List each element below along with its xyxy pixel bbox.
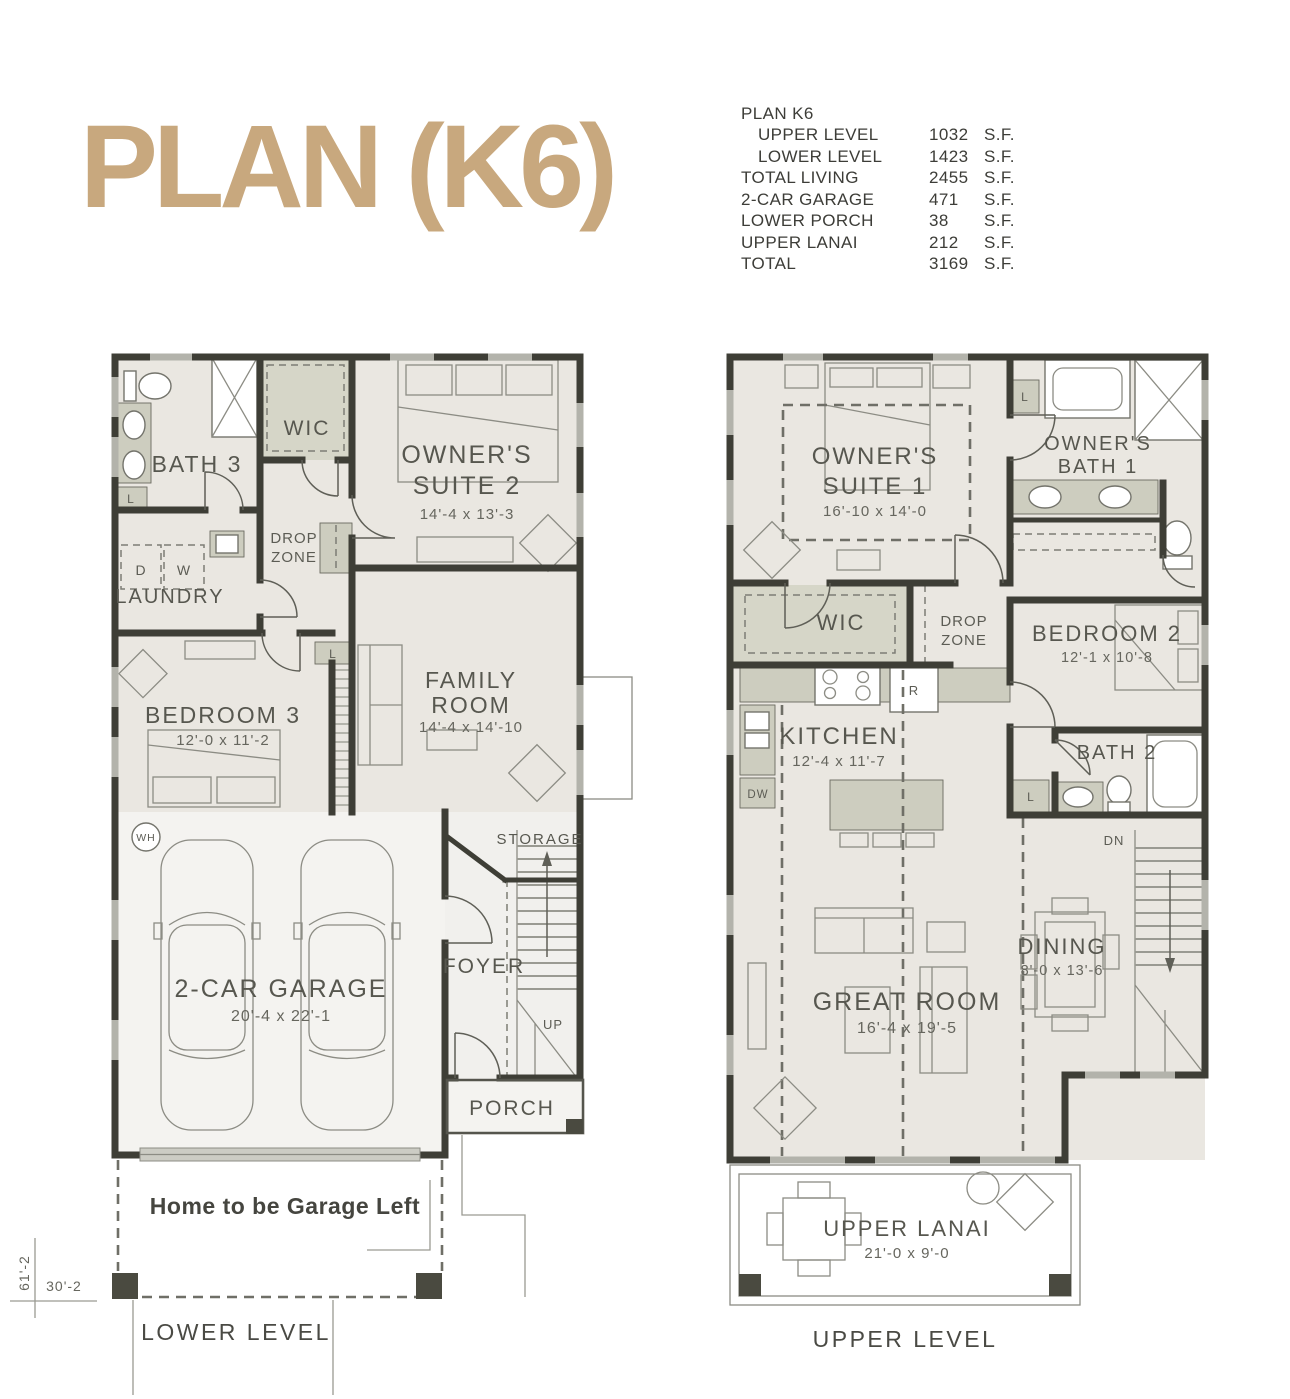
room-label-garage: 2-CAR GARAGE	[175, 975, 388, 1003]
table-row: 2-CAR GARAGE471S.F.	[741, 189, 1041, 211]
room-label-kitchen: KITCHEN	[779, 723, 898, 750]
chair-icon	[997, 1174, 1054, 1231]
linen-label: L	[329, 647, 337, 661]
stairs-down-label: DN	[1104, 833, 1125, 848]
table-row: TOTAL LIVING2455S.F.	[741, 168, 1041, 190]
room-label-owners-suite2: SUITE 2	[413, 472, 521, 500]
upper-level-caption: UPPER LEVEL	[813, 1326, 998, 1352]
washer-label: W	[177, 562, 191, 578]
laundry-sink	[216, 535, 238, 553]
driveway-post	[416, 1273, 442, 1299]
table-row: UPPER LEVEL1032S.F.	[741, 125, 1041, 147]
sink-icon	[1029, 486, 1061, 508]
room-dims-upper-lanai: 21'-0 x 9'-0	[864, 1245, 949, 1262]
round-table-icon	[967, 1172, 999, 1204]
toilet-icon	[139, 373, 171, 399]
room-label-dining: DINING	[1018, 934, 1107, 959]
stats-heading: PLAN K6	[741, 104, 929, 124]
dishwasher-label: DW	[747, 789, 768, 801]
room-label-foyer: FOYER	[443, 955, 525, 978]
toilet-icon	[1163, 521, 1191, 555]
room-dims-dining: 8'-0 x 13'-6	[1021, 963, 1104, 979]
room-dims-bedroom2: 12'-1 x 10'-8	[1061, 650, 1153, 666]
room-label-storage: STORAGE	[496, 831, 583, 848]
linen-label: L	[127, 492, 135, 506]
range-icon	[815, 665, 880, 705]
room-label-wic: WIC	[284, 417, 331, 440]
room-label-drop-zone: DROP	[940, 613, 987, 630]
sink-icon	[1063, 787, 1093, 807]
room-label-drop-zone: DROP	[270, 530, 317, 547]
toilet-icon	[1107, 776, 1131, 804]
room-label-bath2: BATH 2	[1077, 742, 1158, 764]
room-dims-garage: 20'-4 x 22'-1	[231, 1008, 331, 1025]
room-label-owners-bath1: BATH 1	[1058, 456, 1139, 478]
walkway-lines	[133, 1135, 525, 1395]
room-label-family-room: ROOM	[431, 692, 511, 718]
lower-level-floorplan: BATH 3 WIC OWNER'S SUITE 2 14'-4 x 13'-3…	[0, 345, 670, 1399]
room-dims-bedroom3: 12'-0 x 11'-2	[176, 732, 270, 749]
tub-icon	[1045, 360, 1130, 418]
dryer-label: D	[135, 562, 146, 578]
table-row: TOTAL3169S.F.	[741, 254, 1041, 276]
water-heater-label: WH	[136, 832, 156, 844]
page-title: PLAN (K6)	[80, 92, 613, 242]
kitchen-island	[830, 780, 943, 830]
area-summary-table: PLAN K6 UPPER LEVEL1032S.F. LOWER LEVEL1…	[741, 103, 1041, 275]
room-label-upper-lanai: UPPER LANAI	[823, 1216, 991, 1241]
lanai-post	[1049, 1274, 1071, 1296]
room-label-owners-bath1: OWNER'S	[1044, 433, 1152, 455]
room-dims-great-room: 16'-4 x 19'-5	[857, 1020, 957, 1037]
refrigerator-label: R	[909, 683, 919, 698]
room-label-porch: PORCH	[469, 1097, 555, 1120]
upper-level-floorplan: OWNER'S SUITE 1 16'-10 x 14'-0 OWNER'S B…	[715, 350, 1235, 1399]
room-dims-family-room: 14'-4 x 14'-10	[419, 719, 523, 736]
room-label-bath3: BATH 3	[152, 451, 243, 477]
room-label-drop-zone: ZONE	[941, 632, 987, 649]
driveway-post	[112, 1273, 138, 1299]
room-label-bedroom3: BEDROOM 3	[145, 702, 301, 728]
lanai-post	[739, 1274, 761, 1296]
room-label-owners-suite2: OWNER'S	[401, 441, 532, 469]
sink-icon	[123, 451, 145, 479]
sink-icon	[1099, 486, 1131, 508]
room-dims-owners-suite2: 14'-4 x 13'-3	[420, 506, 515, 523]
table-row: UPPER LANAI212S.F.	[741, 232, 1041, 254]
garage-left-note: Home to be Garage Left	[150, 1193, 420, 1219]
sink-icon	[745, 712, 769, 730]
room-dims-owners-suite1: 16'-10 x 14'-0	[823, 503, 927, 520]
driveway-outline	[118, 1160, 442, 1297]
linen-label: L	[1021, 390, 1029, 404]
room-label-drop-zone: ZONE	[271, 549, 317, 566]
room-label-great-room: GREAT ROOM	[813, 988, 1002, 1016]
lower-level-caption: LOWER LEVEL	[141, 1319, 331, 1345]
room-label-bedroom2: BEDROOM 2	[1032, 621, 1182, 646]
table-row: LOWER PORCH38S.F.	[741, 211, 1041, 233]
linen-label: L	[1027, 790, 1035, 804]
toilet-icon	[124, 371, 136, 401]
room-label-wic: WIC	[817, 610, 866, 635]
family-room-bay	[580, 677, 632, 799]
porch-post	[566, 1119, 583, 1134]
stairs-up-label: UP	[543, 1017, 563, 1032]
room-label-family-room: FAMILY	[425, 667, 517, 693]
room-label-owners-suite1: OWNER'S	[812, 443, 939, 470]
sink-icon	[123, 411, 145, 439]
table-row: LOWER LEVEL1423S.F.	[741, 146, 1041, 168]
width-dimension: 30'-2	[46, 1278, 82, 1294]
height-dimension: 61'-2	[16, 1255, 32, 1291]
wic-floor	[260, 357, 352, 460]
room-dims-kitchen: 12'-4 x 11'-7	[792, 753, 886, 770]
room-label-owners-suite1: SUITE 1	[823, 473, 928, 500]
room-label-laundry: LAUNDRY	[115, 586, 224, 608]
